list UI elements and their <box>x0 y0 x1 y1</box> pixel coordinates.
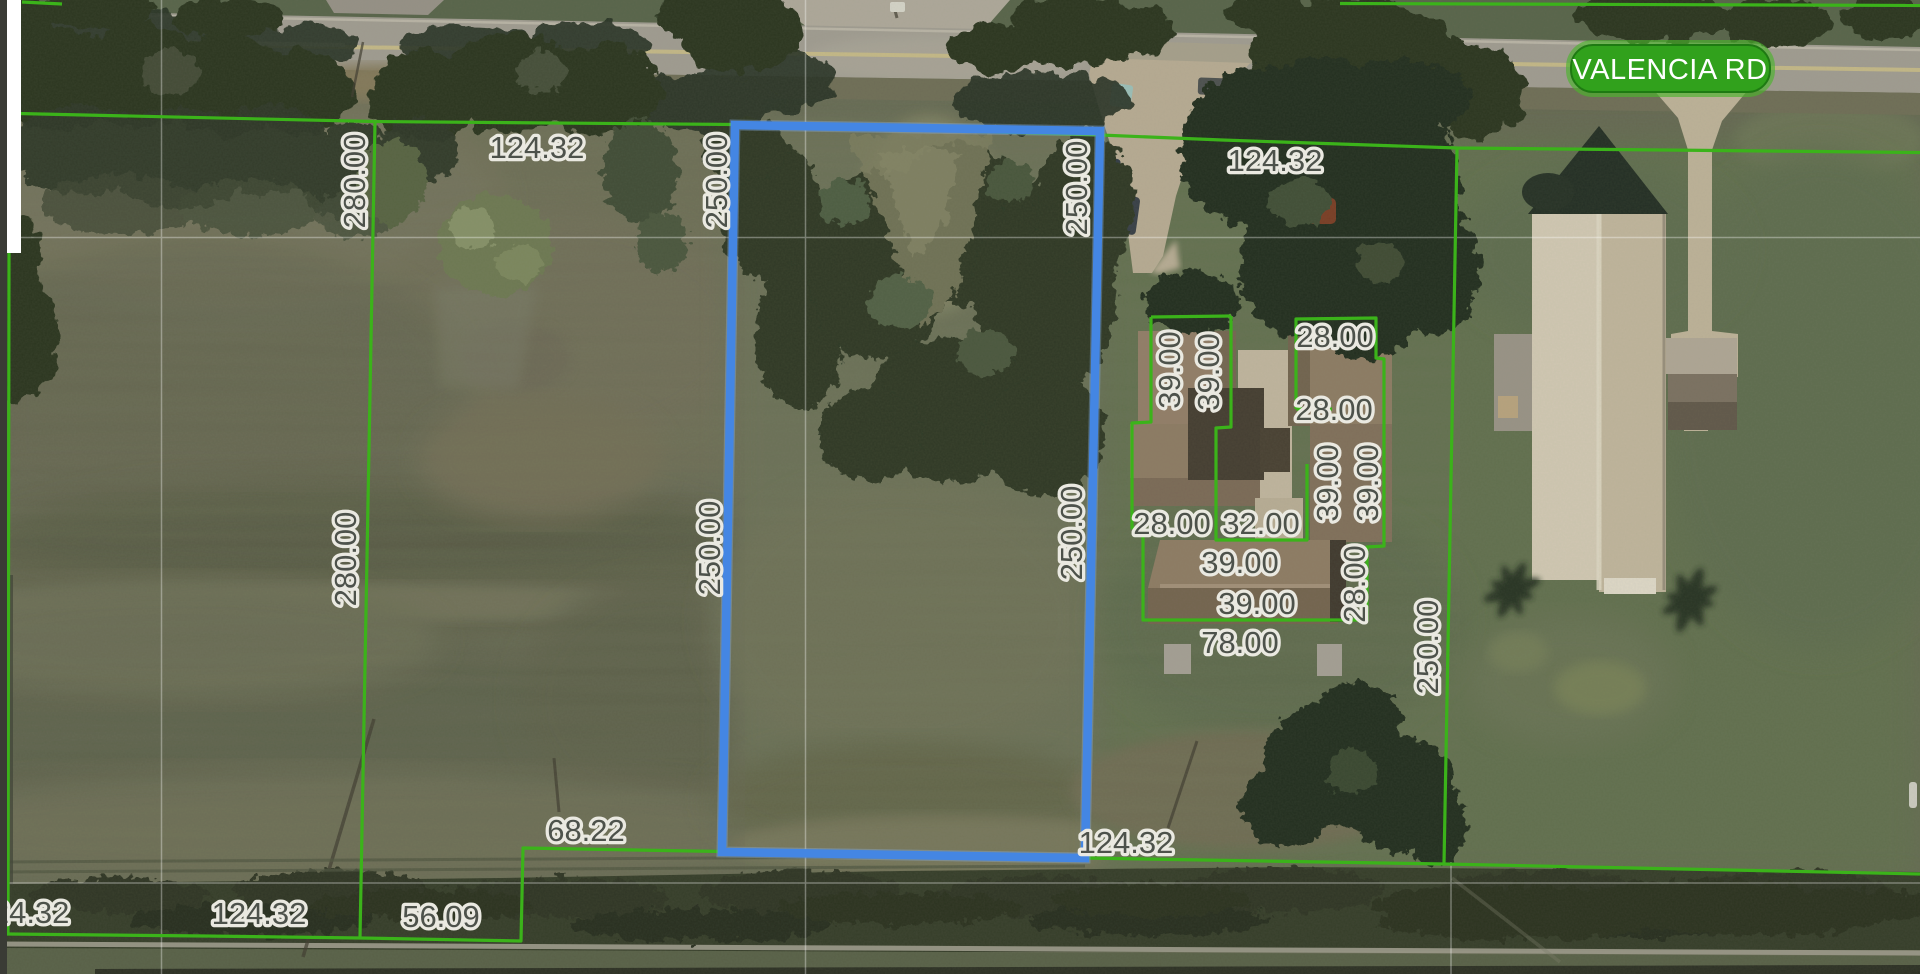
svg-text:39.00: 39.00 <box>1191 333 1226 411</box>
svg-text:68.22: 68.22 <box>547 813 625 848</box>
svg-text:39.00: 39.00 <box>1201 545 1279 580</box>
svg-text:250.00: 250.00 <box>699 134 734 229</box>
svg-text:124.32: 124.32 <box>0 895 69 930</box>
svg-text:39.00: 39.00 <box>1152 331 1187 409</box>
svg-text:124.32: 124.32 <box>212 896 307 931</box>
svg-text:39.00: 39.00 <box>1310 444 1345 522</box>
svg-text:28.00: 28.00 <box>1296 319 1374 354</box>
svg-text:39.00: 39.00 <box>1350 444 1385 522</box>
svg-text:VALENCIA RD: VALENCIA RD <box>1572 54 1767 86</box>
svg-text:280.00: 280.00 <box>337 134 372 229</box>
svg-text:124.32: 124.32 <box>490 130 585 165</box>
svg-text:32.00: 32.00 <box>1222 506 1300 541</box>
svg-text:39.00: 39.00 <box>1218 586 1296 621</box>
svg-text:28.00: 28.00 <box>1133 506 1211 541</box>
svg-text:124.32: 124.32 <box>1228 143 1323 178</box>
svg-text:78.00: 78.00 <box>1201 625 1279 660</box>
svg-text:250.00: 250.00 <box>692 501 727 596</box>
svg-text:250.00: 250.00 <box>1059 141 1094 236</box>
svg-text:250.00: 250.00 <box>1410 600 1445 695</box>
svg-text:250.00: 250.00 <box>1054 486 1089 581</box>
svg-text:280.00: 280.00 <box>328 512 363 607</box>
svg-text:56.09: 56.09 <box>402 899 480 934</box>
svg-text:28.00: 28.00 <box>1337 545 1372 623</box>
svg-text:124.32: 124.32 <box>1079 825 1174 860</box>
svg-text:28.00: 28.00 <box>1295 392 1373 427</box>
